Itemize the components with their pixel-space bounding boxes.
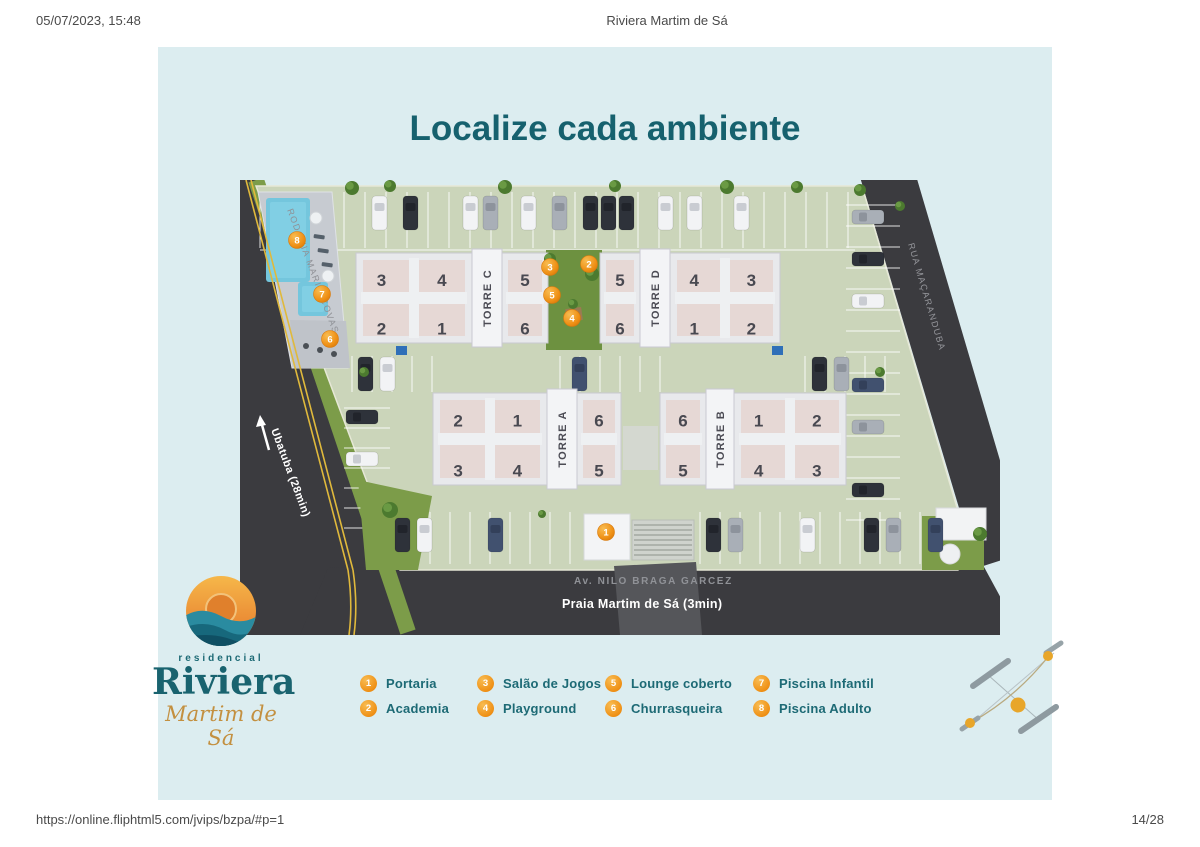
unit-number: 1 bbox=[437, 320, 446, 339]
parked-car bbox=[380, 357, 395, 391]
legend-item: 5Lounge coberto bbox=[605, 674, 732, 692]
parked-car bbox=[601, 196, 616, 230]
sun-icon bbox=[1011, 698, 1026, 713]
legend-column: 7Piscina Infantil8Piscina Adulto bbox=[753, 674, 874, 724]
legend-number-badge: 2 bbox=[360, 700, 377, 717]
unit-number: 6 bbox=[678, 412, 687, 431]
road-label-nilo-braga: Av. NILO BRAGA GARCEZ bbox=[574, 576, 733, 587]
amenity-marker-5: 5 bbox=[544, 287, 561, 304]
svg-text:4: 4 bbox=[569, 313, 575, 324]
parked-car bbox=[403, 196, 418, 230]
sun-icon bbox=[1043, 651, 1053, 661]
legend-column: 3Salão de Jogos4Playground bbox=[477, 674, 601, 724]
svg-text:2: 2 bbox=[586, 259, 591, 270]
svg-text:1: 1 bbox=[603, 527, 609, 538]
legend-item: 6Churrasqueira bbox=[605, 699, 732, 717]
parked-car bbox=[372, 196, 387, 230]
unit-number: 3 bbox=[747, 271, 756, 290]
parked-car bbox=[572, 357, 587, 391]
parked-car bbox=[852, 378, 884, 392]
svg-text:5: 5 bbox=[549, 290, 555, 301]
unit-number: 4 bbox=[437, 271, 447, 290]
print-footer-page-number: 14/28 bbox=[1131, 812, 1164, 827]
parked-car bbox=[488, 518, 503, 552]
amenity-marker-3: 3 bbox=[542, 259, 559, 276]
unit-number: 1 bbox=[754, 412, 763, 431]
legend-number-badge: 7 bbox=[753, 675, 770, 692]
legend-item: 1Portaria bbox=[360, 674, 449, 692]
parked-car bbox=[619, 196, 634, 230]
sun-path-compass bbox=[958, 635, 1070, 739]
legend-column: 1Portaria2Academia bbox=[360, 674, 449, 724]
tower-label: TORRE A bbox=[557, 410, 569, 467]
parked-car bbox=[728, 518, 743, 552]
parked-car bbox=[483, 196, 498, 230]
tower-torre-b: TORRE B124365 bbox=[660, 389, 846, 489]
unit-number: 4 bbox=[754, 461, 764, 480]
tower-label: TORRE C bbox=[482, 269, 494, 327]
unit-number: 1 bbox=[513, 412, 522, 431]
print-header-title: Riviera Martim de Sá bbox=[0, 13, 1200, 28]
unit-number: 2 bbox=[453, 412, 462, 431]
legend-label: Portaria bbox=[386, 676, 437, 691]
legend-label: Playground bbox=[503, 701, 577, 716]
parked-car bbox=[583, 196, 598, 230]
legend-number-badge: 6 bbox=[605, 700, 622, 717]
parked-car bbox=[521, 196, 536, 230]
amenity-marker-7: 7 bbox=[314, 286, 331, 303]
site-plan-poster: Localize cada ambiente TORRE C342156TORR… bbox=[158, 47, 1052, 800]
svg-text:6: 6 bbox=[327, 334, 332, 345]
road-label-praia: Praia Martim de Sá (3min) bbox=[562, 597, 722, 611]
parked-car bbox=[706, 518, 721, 552]
unit-number: 5 bbox=[615, 271, 624, 290]
unit-number: 5 bbox=[520, 271, 529, 290]
legend-number-badge: 4 bbox=[477, 700, 494, 717]
unit-number: 2 bbox=[812, 412, 821, 431]
parked-car bbox=[346, 410, 378, 424]
parked-car bbox=[687, 196, 702, 230]
unit-number: 5 bbox=[594, 461, 603, 480]
unit-number: 2 bbox=[747, 320, 756, 339]
legend-label: Academia bbox=[386, 701, 449, 716]
amenity-marker-8: 8 bbox=[289, 232, 306, 249]
parked-car bbox=[417, 518, 432, 552]
amenity-marker-2: 2 bbox=[581, 256, 598, 273]
unit-number: 4 bbox=[689, 271, 699, 290]
legend-label: Lounge coberto bbox=[631, 676, 732, 691]
legend-number-badge: 8 bbox=[753, 700, 770, 717]
legend-item: 3Salão de Jogos bbox=[477, 674, 601, 692]
legend-label: Salão de Jogos bbox=[503, 676, 601, 691]
amenity-marker-6: 6 bbox=[322, 331, 339, 348]
print-footer-url: https://online.fliphtml5.com/jvips/bzpa/… bbox=[36, 812, 284, 827]
legend-number-badge: 3 bbox=[477, 675, 494, 692]
unit-number: 6 bbox=[594, 412, 603, 431]
printed-page: 05/07/2023, 15:48 Riviera Martim de Sá L… bbox=[0, 0, 1200, 847]
tower-torre-c: TORRE C342156 bbox=[356, 249, 548, 347]
unit-number: 3 bbox=[812, 461, 821, 480]
svg-text:7: 7 bbox=[319, 289, 324, 300]
legend-number-badge: 5 bbox=[605, 675, 622, 692]
tower-label: TORRE D bbox=[650, 269, 662, 327]
unit-number: 4 bbox=[513, 461, 523, 480]
legend-label: Piscina Adulto bbox=[779, 701, 872, 716]
legend-item: 7Piscina Infantil bbox=[753, 674, 874, 692]
unit-number: 6 bbox=[520, 320, 529, 339]
parked-car bbox=[346, 452, 378, 466]
logo-script-line: Martim de Sá bbox=[152, 702, 290, 750]
amenity-marker-4: 4 bbox=[564, 310, 581, 327]
parked-car bbox=[834, 357, 849, 391]
parked-car bbox=[852, 420, 884, 434]
brand-logo: residencial Riviera Martim de Sá bbox=[152, 575, 290, 750]
tower-torre-d: TORRE D431256 bbox=[600, 249, 780, 347]
unit-number: 2 bbox=[377, 320, 386, 339]
sun-waves-logo-icon bbox=[185, 575, 257, 647]
site-plan-map: TORRE C342156TORRE D431256TORRE A213465T… bbox=[240, 180, 1000, 635]
parked-car bbox=[812, 357, 827, 391]
parked-car bbox=[864, 518, 879, 552]
unit-number: 1 bbox=[689, 320, 698, 339]
legend-item: 8Piscina Adulto bbox=[753, 699, 874, 717]
amenity-marker-1: 1 bbox=[598, 524, 615, 541]
legend-label: Piscina Infantil bbox=[779, 676, 874, 691]
parked-car bbox=[658, 196, 673, 230]
unit-number: 6 bbox=[615, 320, 624, 339]
parked-car bbox=[463, 196, 478, 230]
parked-car bbox=[395, 518, 410, 552]
parked-car bbox=[800, 518, 815, 552]
sun-icon bbox=[965, 718, 975, 728]
parked-car bbox=[734, 196, 749, 230]
parked-car bbox=[852, 252, 884, 266]
parked-car bbox=[928, 518, 943, 552]
poster-title: Localize cada ambiente bbox=[158, 109, 1052, 149]
legend-item: 4Playground bbox=[477, 699, 601, 717]
parked-car bbox=[552, 196, 567, 230]
svg-text:8: 8 bbox=[294, 235, 299, 246]
legend-column: 5Lounge coberto6Churrasqueira bbox=[605, 674, 732, 724]
svg-text:3: 3 bbox=[547, 262, 552, 273]
parked-car bbox=[852, 294, 884, 308]
legend-number-badge: 1 bbox=[360, 675, 377, 692]
unit-number: 3 bbox=[453, 461, 462, 480]
tower-label: TORRE B bbox=[715, 410, 727, 468]
tower-torre-a: TORRE A213465 bbox=[433, 389, 621, 489]
legend-item: 2Academia bbox=[360, 699, 449, 717]
legend-label: Churrasqueira bbox=[631, 701, 722, 716]
logo-name: Riviera bbox=[152, 664, 290, 701]
parked-car bbox=[852, 210, 884, 224]
parked-car bbox=[886, 518, 901, 552]
parked-car bbox=[852, 483, 884, 497]
unit-number: 5 bbox=[678, 461, 687, 480]
unit-number: 3 bbox=[377, 271, 386, 290]
